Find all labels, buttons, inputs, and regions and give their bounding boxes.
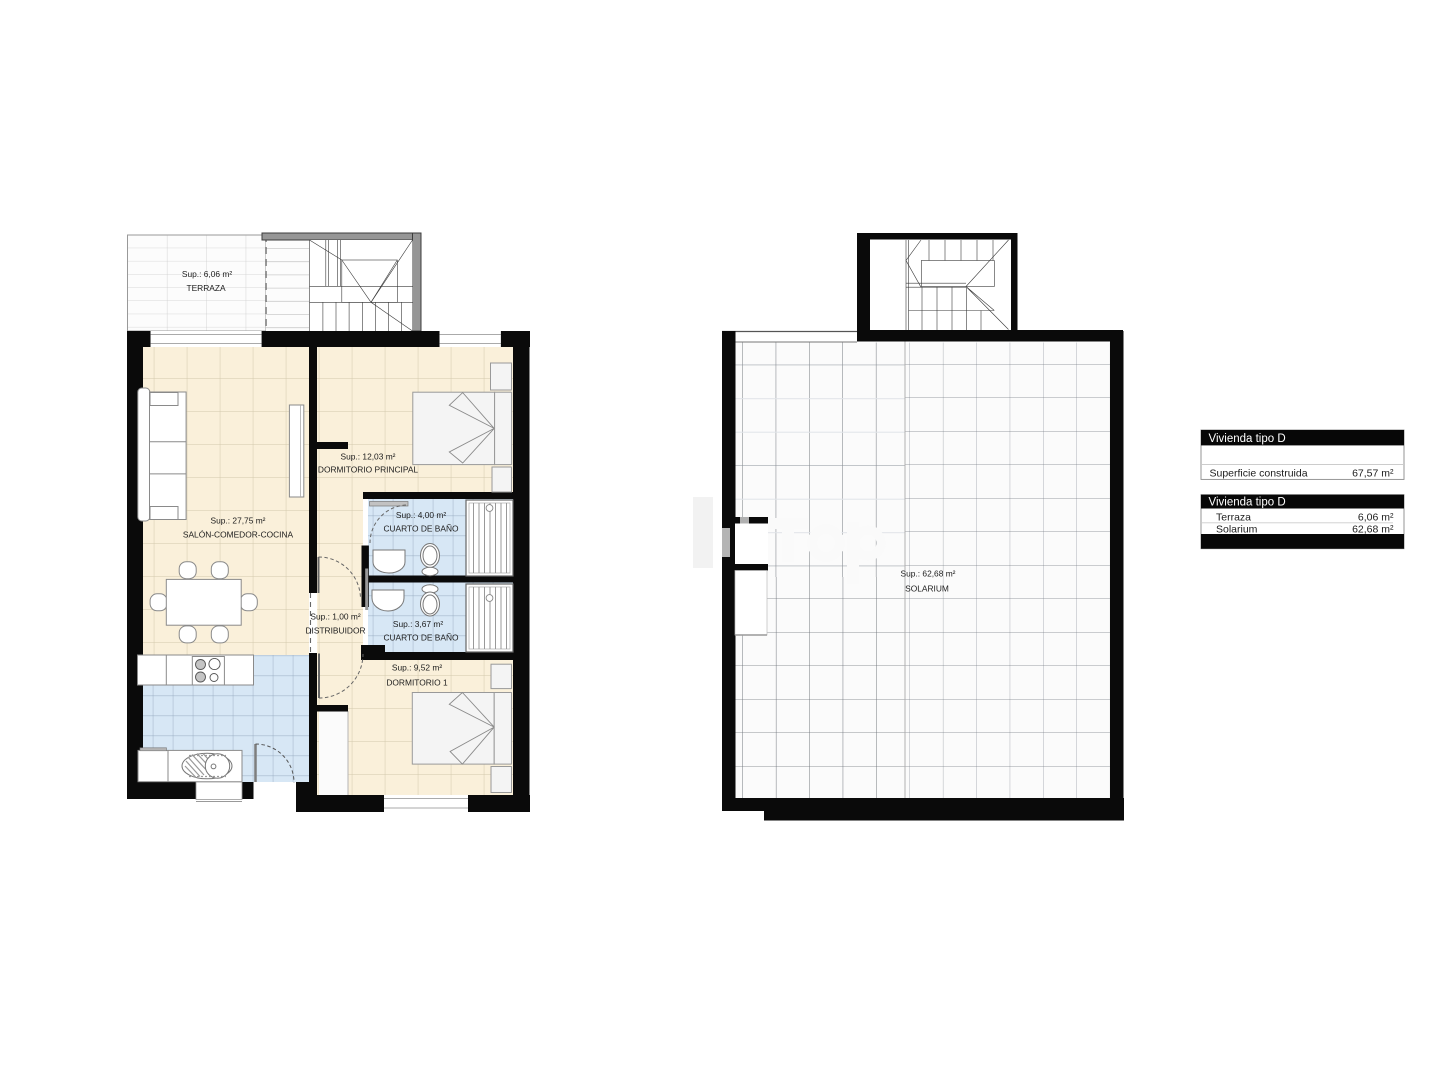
svg-text:CUARTO DE BAÑO: CUARTO DE BAÑO [383, 633, 459, 643]
svg-text:Vivienda tipo D: Vivienda tipo D [1209, 497, 1286, 509]
svg-text:SOLARIUM: SOLARIUM [905, 584, 949, 594]
svg-text:62,68 m²: 62,68 m² [1352, 524, 1394, 536]
svg-text:DISTRIBUIDOR: DISTRIBUIDOR [305, 626, 365, 636]
svg-text:Vivienda tipo D: Vivienda tipo D [1209, 433, 1286, 445]
svg-text:DORMITORIO PRINCIPAL: DORMITORIO PRINCIPAL [318, 465, 419, 475]
svg-text:6,06 m²: 6,06 m² [1358, 511, 1394, 523]
svg-text:Sup.: 1,00 m²: Sup.: 1,00 m² [310, 612, 360, 622]
svg-text:Terraza: Terraza [1216, 511, 1251, 523]
svg-text:CUARTO DE BAÑO: CUARTO DE BAÑO [383, 524, 459, 534]
svg-text:Sup.: 3,67 m²: Sup.: 3,67 m² [393, 619, 443, 629]
svg-text:Sup.: 4,00 m²: Sup.: 4,00 m² [396, 510, 446, 520]
svg-text:Sup.: 12,03 m²: Sup.: 12,03 m² [341, 452, 396, 462]
svg-text:TERRAZA: TERRAZA [186, 283, 226, 293]
svg-text:Sup.: 9,52 m²: Sup.: 9,52 m² [392, 663, 442, 673]
svg-text:SALÓN-COMEDOR-COCINA: SALÓN-COMEDOR-COCINA [183, 530, 294, 540]
svg-text:Solarium: Solarium [1216, 524, 1258, 536]
svg-text:Sup.: 62,68 m²: Sup.: 62,68 m² [901, 569, 956, 579]
svg-text:Sup.: 27,75 m²: Sup.: 27,75 m² [211, 516, 266, 526]
svg-text:67,57 m²: 67,57 m² [1352, 468, 1394, 480]
svg-text:DORMITORIO 1: DORMITORIO 1 [386, 678, 448, 688]
svg-text:Sup.: 6,06 m²: Sup.: 6,06 m² [182, 269, 232, 279]
svg-text:Superficie construida: Superficie construida [1210, 468, 1308, 480]
